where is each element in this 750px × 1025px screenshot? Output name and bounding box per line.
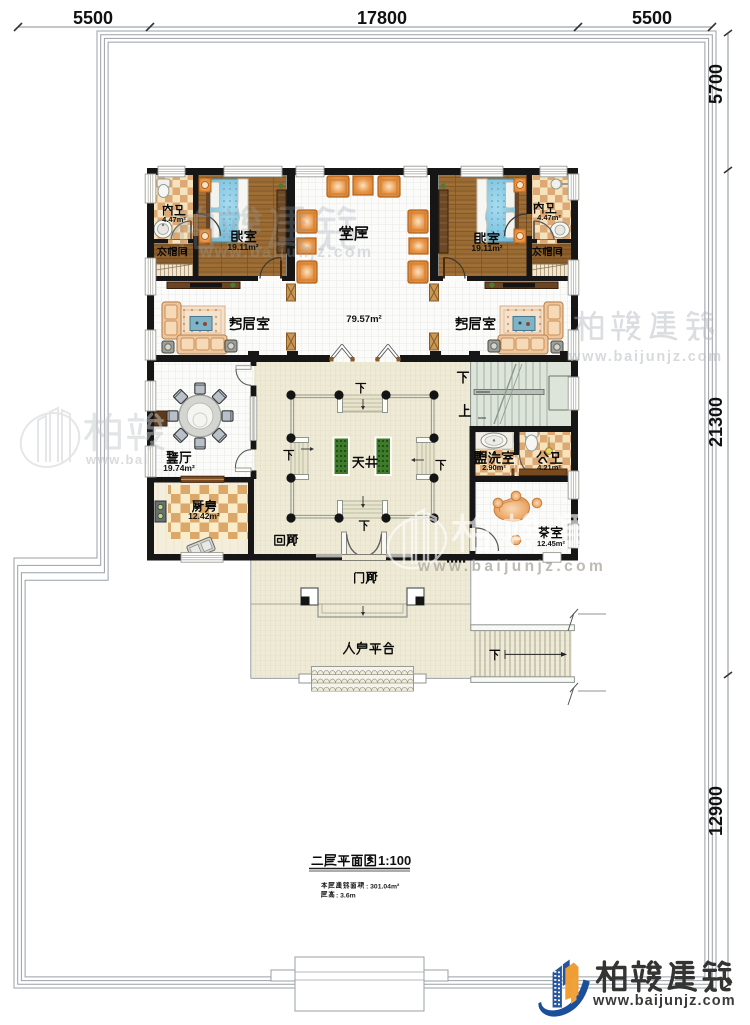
svg-text:5700: 5700 bbox=[706, 64, 726, 104]
svg-text:5500: 5500 bbox=[73, 8, 113, 28]
svg-text:12.42m²: 12.42m² bbox=[188, 511, 220, 521]
svg-text:19.74m²: 19.74m² bbox=[163, 463, 195, 473]
svg-text:4.47m²: 4.47m² bbox=[537, 213, 561, 222]
svg-text:www.baijunjz.com: www.baijunjz.com bbox=[592, 993, 736, 1009]
svg-text:www.baijunjz.com: www.baijunjz.com bbox=[199, 244, 373, 261]
svg-text:17800: 17800 bbox=[357, 8, 407, 28]
svg-text:2.90m²: 2.90m² bbox=[482, 463, 506, 472]
svg-text:19.11m²: 19.11m² bbox=[471, 243, 502, 253]
svg-text:12.45m²: 12.45m² bbox=[537, 539, 565, 548]
svg-text:www.bai: www.bai bbox=[85, 452, 149, 467]
svg-text:21300: 21300 bbox=[706, 397, 726, 447]
svg-text:1:100: 1:100 bbox=[378, 853, 411, 868]
svg-text:4.21m²: 4.21m² bbox=[537, 463, 561, 472]
svg-text:: 301.04m²: : 301.04m² bbox=[366, 884, 400, 891]
svg-text:: 3.6m: : 3.6m bbox=[336, 893, 356, 900]
svg-text:19.11m²: 19.11m² bbox=[227, 242, 258, 252]
svg-text:5500: 5500 bbox=[632, 8, 672, 28]
svg-text:79.57m²: 79.57m² bbox=[346, 314, 381, 325]
svg-text:12900: 12900 bbox=[706, 786, 726, 836]
svg-text:www.baijunjz.com: www.baijunjz.com bbox=[568, 349, 723, 365]
svg-text:www.baijunjz.com: www.baijunjz.com bbox=[417, 558, 606, 575]
svg-text:4.47m²: 4.47m² bbox=[162, 215, 186, 224]
